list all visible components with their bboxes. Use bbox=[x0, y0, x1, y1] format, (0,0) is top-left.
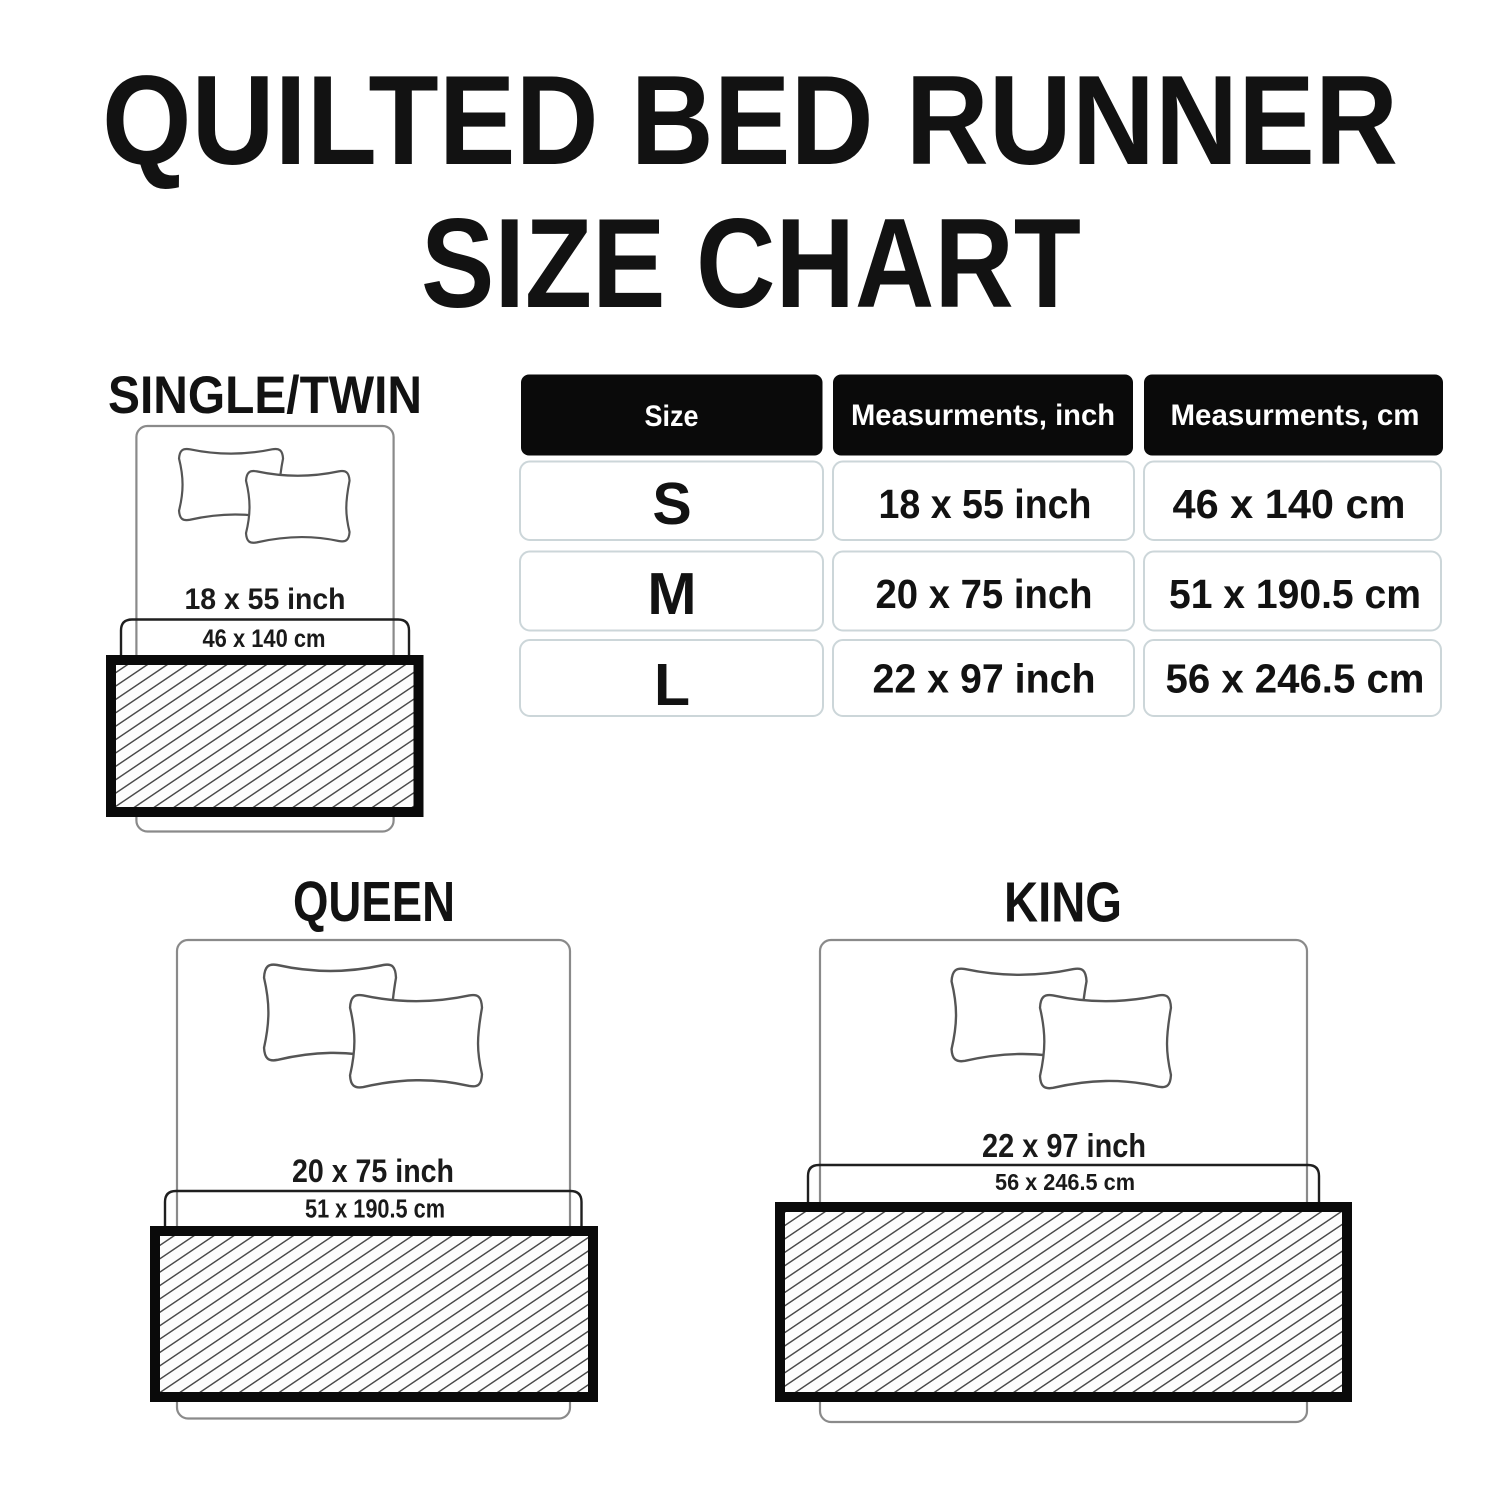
svg-text:18 x 55 inch: 18 x 55 inch bbox=[879, 481, 1092, 527]
svg-text:56 x 246.5 cm: 56 x 246.5 cm bbox=[1166, 656, 1425, 702]
svg-text:SINGLE/TWIN: SINGLE/TWIN bbox=[108, 366, 422, 425]
svg-text:QUILTED BED RUNNER: QUILTED BED RUNNER bbox=[102, 49, 1398, 191]
svg-text:20 x 75 inch: 20 x 75 inch bbox=[292, 1153, 454, 1189]
svg-text:22 x 97 inch: 22 x 97 inch bbox=[982, 1127, 1146, 1164]
svg-text:QUEEN: QUEEN bbox=[293, 870, 455, 934]
svg-text:SIZE CHART: SIZE CHART bbox=[421, 192, 1081, 334]
svg-text:L: L bbox=[654, 652, 690, 718]
svg-text:56 x 246.5 cm: 56 x 246.5 cm bbox=[995, 1169, 1135, 1195]
svg-text:KING: KING bbox=[1004, 871, 1122, 935]
svg-text:18 x 55 inch: 18 x 55 inch bbox=[185, 583, 346, 616]
svg-text:46 x 140 cm: 46 x 140 cm bbox=[203, 625, 326, 653]
svg-text:51 x 190.5 cm: 51 x 190.5 cm bbox=[305, 1196, 445, 1224]
svg-text:51 x 190.5 cm: 51 x 190.5 cm bbox=[1169, 571, 1421, 617]
svg-text:46 x 140 cm: 46 x 140 cm bbox=[1173, 481, 1406, 527]
svg-text:Measurments, inch: Measurments, inch bbox=[851, 399, 1115, 432]
svg-text:Size: Size bbox=[645, 400, 699, 433]
svg-text:20 x 75 inch: 20 x 75 inch bbox=[876, 571, 1093, 617]
svg-text:22 x 97 inch: 22 x 97 inch bbox=[873, 656, 1096, 702]
svg-text:S: S bbox=[652, 471, 691, 537]
svg-text:Measurments, cm: Measurments, cm bbox=[1171, 399, 1420, 432]
svg-text:M: M bbox=[647, 561, 696, 627]
